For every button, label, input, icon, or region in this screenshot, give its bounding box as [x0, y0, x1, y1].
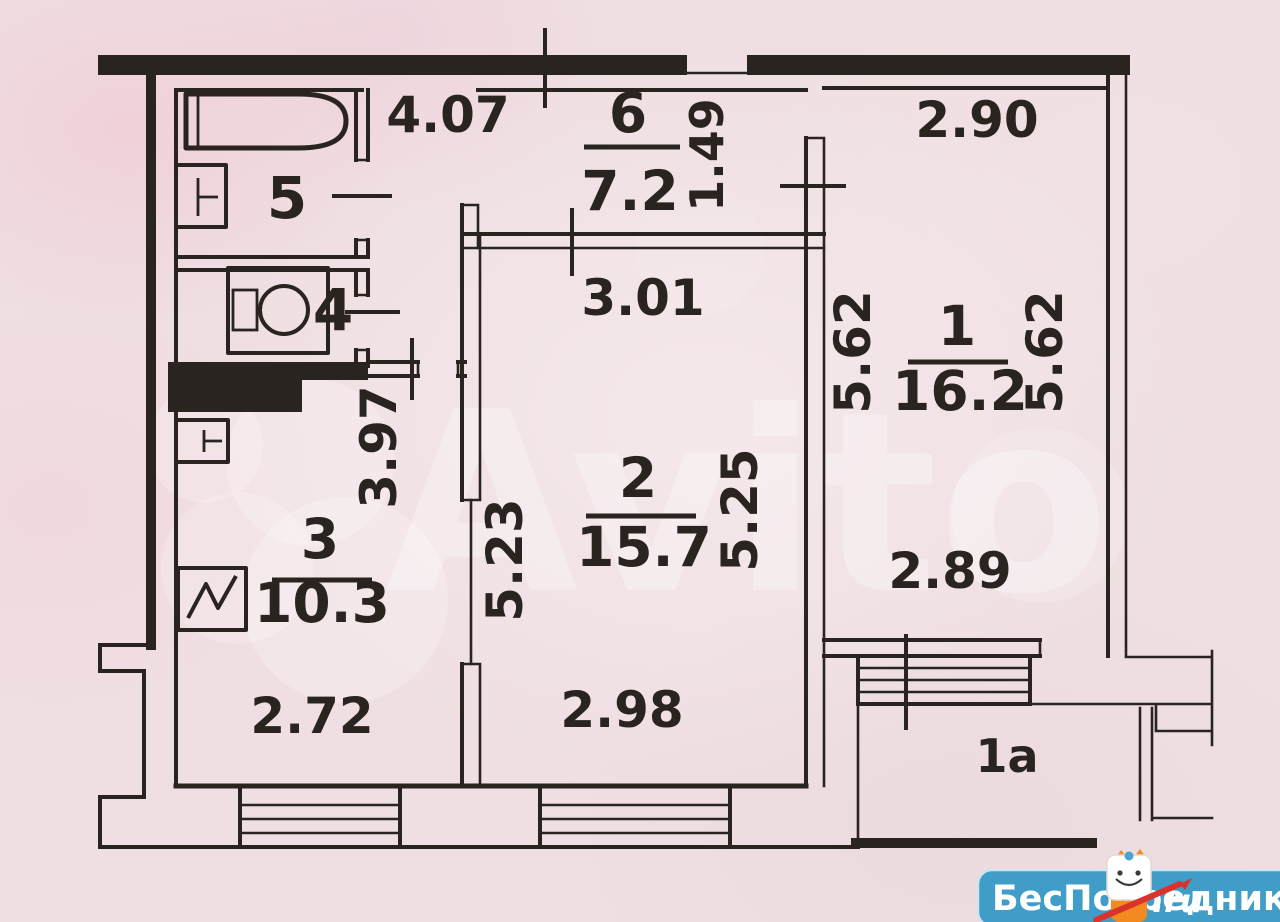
- toilet-right-wall: [356, 270, 368, 366]
- bathroom-door-jambs: [356, 160, 368, 240]
- room6-area: 7.2: [581, 159, 678, 223]
- toilet-bowl: [260, 286, 308, 334]
- room3-area: 10.3: [254, 571, 390, 635]
- dim-room2-height-left: 5.23: [476, 498, 534, 621]
- room2-window-frame: [540, 786, 730, 847]
- bathtub-icon: [186, 94, 346, 148]
- fox-eye-right: [1135, 870, 1140, 875]
- bathroom-right-wall: [356, 90, 368, 257]
- dim-room2-width-bottom: 2.98: [560, 681, 683, 739]
- room6-number: 6: [609, 81, 647, 145]
- left-outer-wall-jog: [100, 645, 151, 847]
- room2-number: 2: [619, 446, 657, 510]
- dim-room1-height-left: 5.62: [824, 290, 882, 413]
- room5-number: 5: [267, 164, 307, 232]
- room4-number: 4: [313, 276, 353, 344]
- floor-plan-scan: Avito: [0, 0, 1280, 922]
- toilet-door-jambs: [356, 295, 368, 350]
- fox-eye-left: [1117, 870, 1122, 875]
- toilet-cistern: [233, 290, 257, 330]
- room3-window-hatch: [240, 805, 400, 833]
- dim-room3-height: 3.97: [350, 385, 408, 508]
- dim-room2-height-right: 5.25: [711, 448, 769, 571]
- dim-room1-width-top: 2.90: [915, 91, 1038, 149]
- top-wall: [747, 55, 1130, 75]
- room1-area: 16.2: [892, 359, 1028, 423]
- kitchen-left-wall: [462, 205, 478, 248]
- balcony-outline: [856, 704, 1092, 845]
- room2-area: 15.7: [576, 515, 712, 579]
- neighbor-slab-lines: [1030, 651, 1212, 820]
- dim-hall-width: 4.07: [386, 86, 509, 144]
- room2-window-hatch: [540, 805, 730, 833]
- besposrednika-banner: БесПосредника .ru: [978, 849, 1280, 922]
- room3-number: 3: [301, 507, 339, 571]
- balcony-number: 1a: [975, 729, 1038, 783]
- top-wall: [98, 55, 687, 75]
- dim-room2-width-top: 3.01: [581, 269, 704, 327]
- room1-balcony-window-hatch: [858, 668, 1030, 692]
- dim-niche-width: 1.49: [680, 98, 734, 212]
- fox-clip: [1125, 852, 1134, 861]
- fox-face: [1107, 855, 1151, 900]
- sink-inner: [198, 178, 218, 216]
- room1-number: 1: [938, 294, 976, 358]
- room3-window-frame: [240, 786, 400, 847]
- floor-plan-svg: Avito: [0, 0, 1280, 922]
- dim-room3-width-bottom: 2.72: [250, 687, 373, 745]
- dim-room1-width-bottom: 2.89: [888, 542, 1011, 600]
